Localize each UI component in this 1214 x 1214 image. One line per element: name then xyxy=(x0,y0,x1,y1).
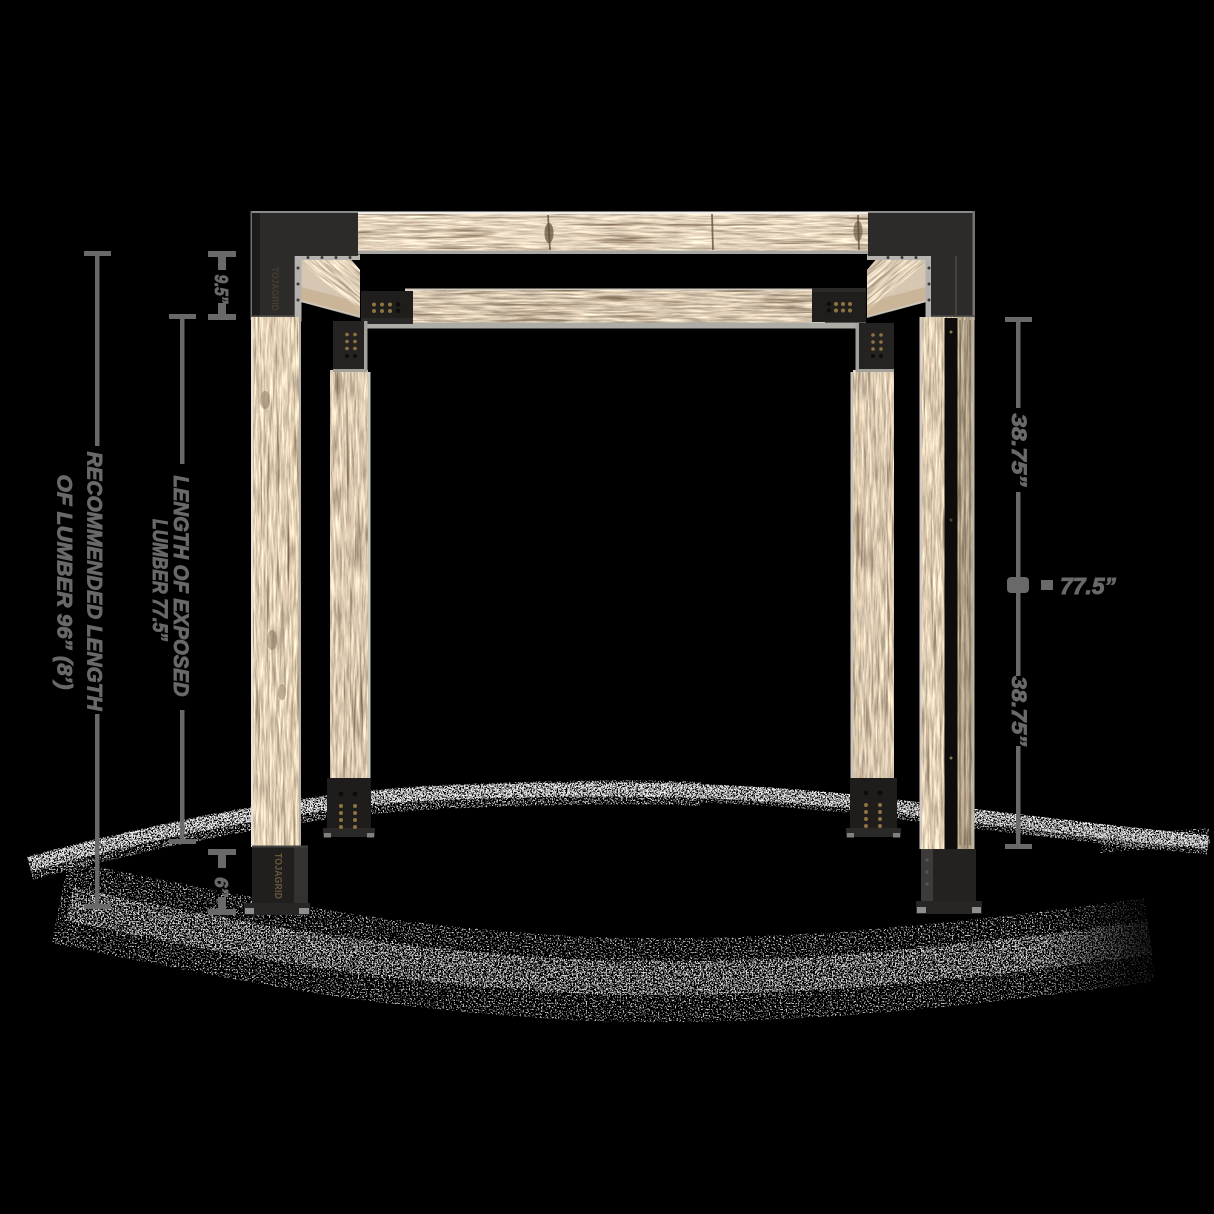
svg-text:OF LUMBER 96” (8’): OF LUMBER 96” (8’) xyxy=(53,475,77,690)
svg-text:77.5”: 77.5” xyxy=(1060,573,1116,599)
svg-text:9.5”: 9.5” xyxy=(211,275,231,304)
svg-text:TOJAGRID: TOJAGRID xyxy=(269,267,280,311)
svg-text:38.75”: 38.75” xyxy=(1007,414,1031,487)
svg-text:LUMBER 77.5”: LUMBER 77.5” xyxy=(148,519,172,641)
svg-text:38.75”: 38.75” xyxy=(1007,676,1031,746)
svg-text:TOJAGRID: TOJAGRID xyxy=(272,853,283,899)
svg-text:6”: 6” xyxy=(211,877,231,897)
svg-text:RECOMMENDED LENGTH: RECOMMENDED LENGTH xyxy=(83,452,107,711)
